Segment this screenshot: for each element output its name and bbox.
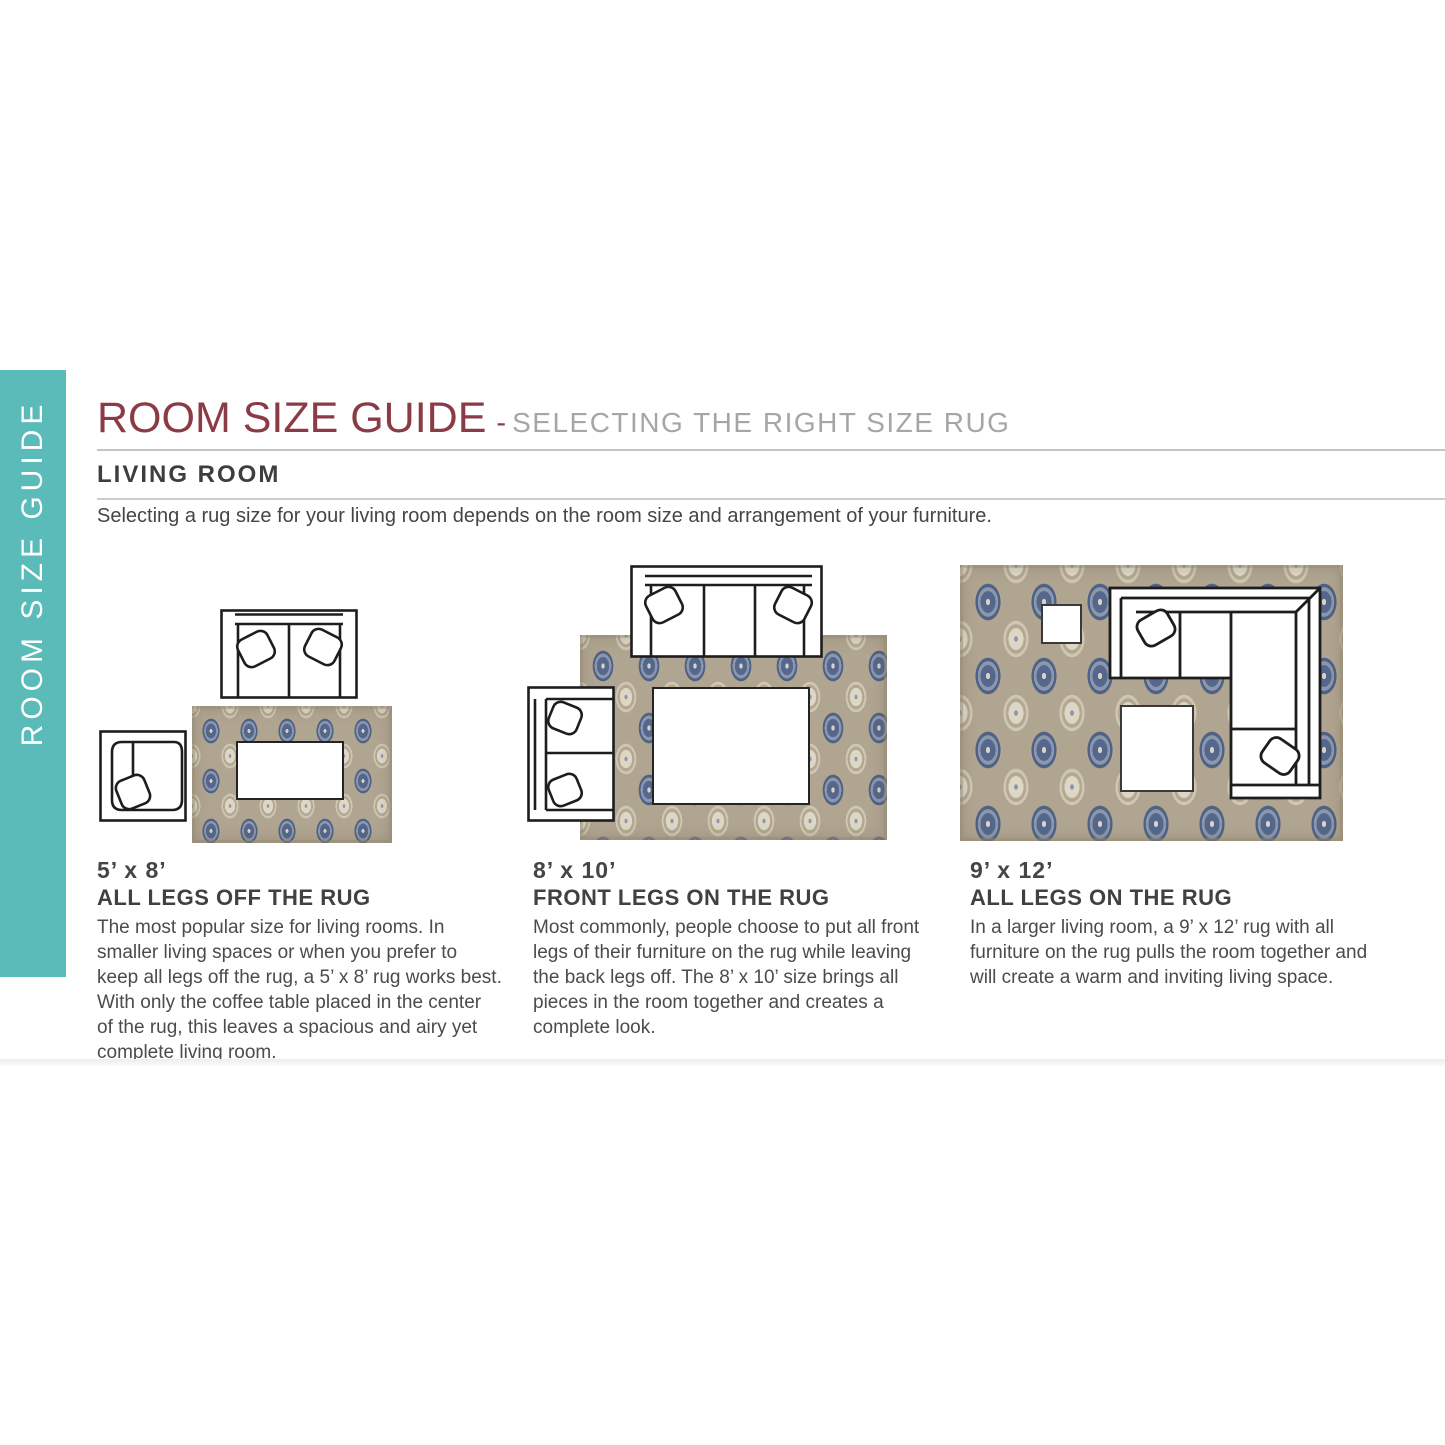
title-separator: - bbox=[496, 407, 506, 439]
loveseat-top-view bbox=[220, 609, 358, 699]
description-5x8: The most popular size for living rooms. … bbox=[97, 915, 502, 1065]
coffee-table-8x10 bbox=[652, 687, 810, 805]
coffee-table-5x8 bbox=[236, 741, 344, 800]
side-table-9x12 bbox=[1041, 604, 1082, 644]
sidebar-vertical-title: ROOM SIZE GUIDE bbox=[16, 400, 50, 747]
description-8x10: Most commonly, people choose to put all … bbox=[533, 915, 938, 1040]
room-size-guide-page: ROOM SIZE GUIDE ROOM SIZE GUIDE-SELECTIN… bbox=[0, 0, 1445, 1445]
sofa-top-view bbox=[630, 565, 823, 658]
page-header: ROOM SIZE GUIDE-SELECTING THE RIGHT SIZE… bbox=[97, 394, 1010, 443]
description-9x12: In a larger living room, a 9’ x 12’ rug … bbox=[970, 915, 1375, 990]
caption-9x12: 9’ x 12’ ALL LEGS ON THE RUG In a larger… bbox=[970, 857, 1375, 990]
rule-label-9x12: ALL LEGS ON THE RUG bbox=[970, 884, 1375, 911]
loveseat-side-top-view bbox=[527, 686, 615, 822]
size-label-5x8: 5’ x 8’ bbox=[97, 857, 502, 884]
rule-label-5x8: ALL LEGS OFF THE RUG bbox=[97, 884, 502, 911]
armchair-top-view bbox=[99, 730, 187, 822]
coffee-table-9x12 bbox=[1120, 705, 1194, 792]
caption-5x8: 5’ x 8’ ALL LEGS OFF THE RUG The most po… bbox=[97, 857, 502, 1065]
size-label-9x12: 9’ x 12’ bbox=[970, 857, 1375, 884]
section-heading-living-room: LIVING ROOM bbox=[97, 461, 280, 489]
header-divider-line bbox=[97, 449, 1445, 451]
section-divider-line bbox=[97, 498, 1445, 500]
rule-label-8x10: FRONT LEGS ON THE RUG bbox=[533, 884, 938, 911]
page-subtitle: SELECTING THE RIGHT SIZE RUG bbox=[512, 407, 1010, 438]
page-title: ROOM SIZE GUIDE bbox=[97, 394, 486, 442]
graphic-bottom-edge bbox=[0, 1059, 1445, 1066]
size-label-8x10: 8’ x 10’ bbox=[533, 857, 938, 884]
intro-text: Selecting a rug size for your living roo… bbox=[97, 505, 992, 528]
sidebar-band: ROOM SIZE GUIDE bbox=[0, 370, 66, 977]
caption-8x10: 8’ x 10’ FRONT LEGS ON THE RUG Most comm… bbox=[533, 857, 938, 1040]
